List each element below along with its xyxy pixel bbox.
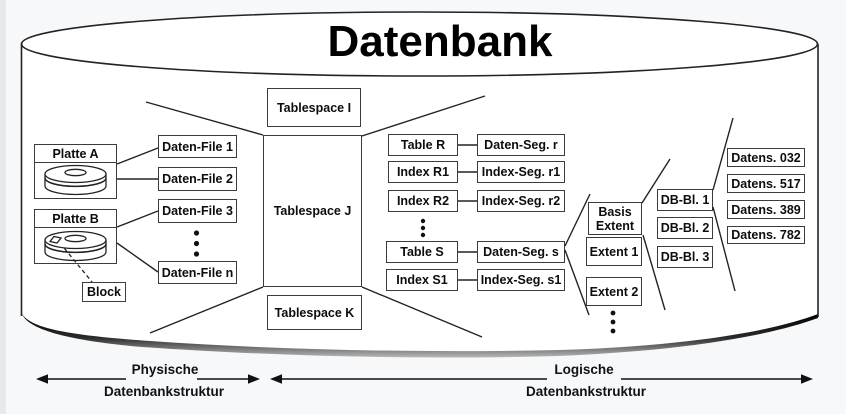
tablespace-k-box: Tablespace K — [267, 295, 362, 330]
platte-a-box: Platte A — [34, 144, 117, 199]
daten-file-1-box: Daten-File 1 — [158, 135, 237, 158]
platte-b-label: Platte B — [52, 212, 99, 226]
legend-physical-line2: Datenbankstruktur — [84, 384, 244, 399]
diagram-title: Datenbank — [280, 17, 600, 67]
index-r1-box: Index R1 — [388, 161, 458, 183]
platte-b-box: Platte B — [34, 209, 117, 264]
record-782-box: Datens. 782 — [727, 226, 805, 244]
database-structure-diagram: Datenbank Platte A Platte B Block Daten-… — [0, 0, 846, 414]
basis-extent-box: Basis Extent — [588, 202, 642, 235]
index-seg-r2-box: Index-Seg. r2 — [477, 190, 565, 212]
extent-2-box: Extent 2 — [586, 277, 642, 306]
daten-seg-s-box: Daten-Seg. s — [477, 241, 565, 263]
table-r-box: Table R — [388, 134, 458, 156]
legend-physical-line1: Physische — [95, 362, 235, 377]
platte-a-label: Platte A — [52, 147, 98, 161]
index-r2-box: Index R2 — [388, 190, 458, 212]
index-s1-box: Index S1 — [386, 269, 458, 291]
daten-file-3-box: Daten-File 3 — [158, 199, 237, 223]
index-seg-r1-box: Index-Seg. r1 — [477, 161, 565, 183]
daten-seg-r-box: Daten-Seg. r — [477, 134, 565, 156]
db-block-3-box: DB-Bl. 3 — [657, 246, 713, 268]
record-517-box: Datens. 517 — [727, 174, 805, 193]
index-seg-s1-box: Index-Seg. s1 — [477, 269, 565, 291]
record-389-box: Datens. 389 — [727, 200, 805, 219]
legend-logical-line2: Datenbankstruktur — [506, 384, 666, 399]
daten-file-2-box: Daten-File 2 — [158, 167, 237, 191]
extent-1-box: Extent 1 — [586, 237, 642, 266]
db-block-1-box: DB-Bl. 1 — [657, 189, 713, 211]
block-box: Block — [82, 282, 126, 302]
tablespace-i-box: Tablespace I — [267, 88, 361, 127]
legend-logical-line1: Logische — [514, 362, 654, 377]
tablespace-j-box: Tablespace J — [263, 135, 362, 287]
record-032-box: Datens. 032 — [727, 148, 805, 167]
table-s-box: Table S — [386, 241, 458, 263]
daten-file-n-box: Daten-File n — [158, 261, 237, 284]
db-block-2-box: DB-Bl. 2 — [657, 217, 713, 239]
